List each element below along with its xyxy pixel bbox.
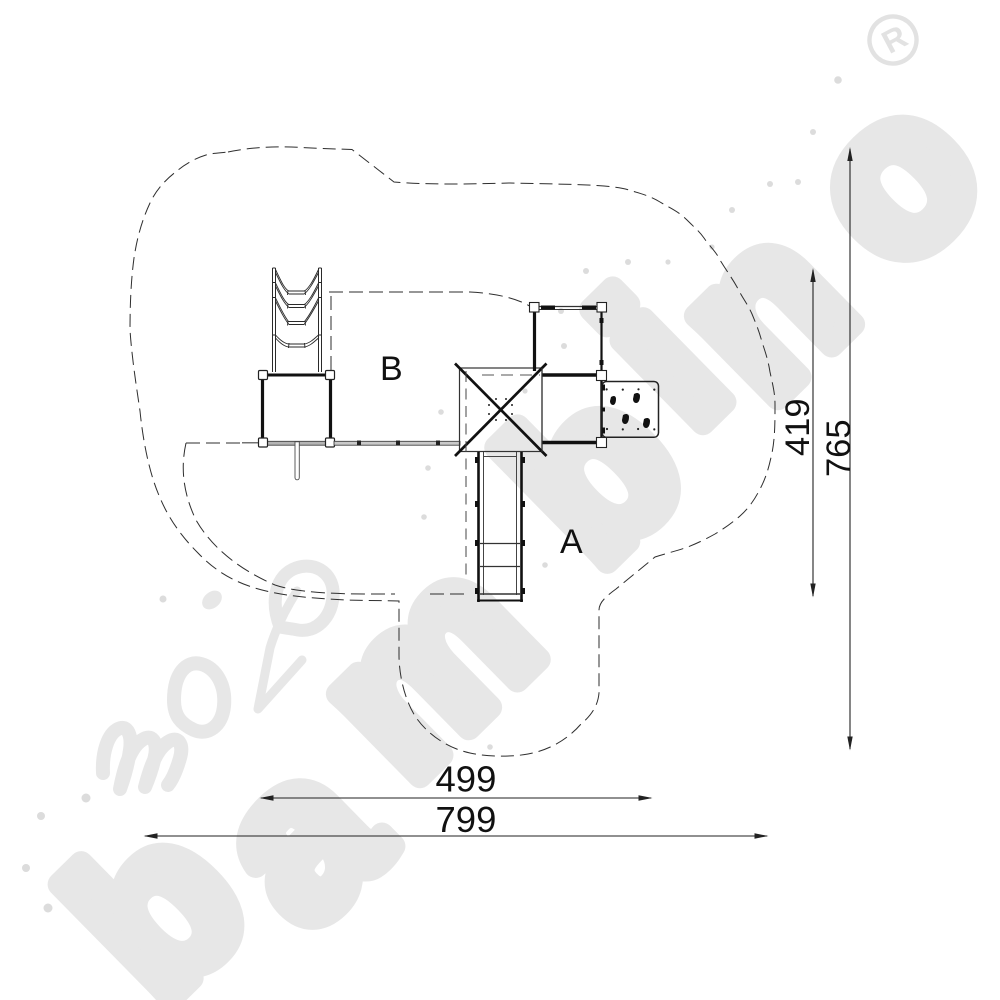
svg-text:A: A [560, 523, 583, 561]
svg-text:499: 499 [436, 759, 497, 800]
svg-text:765: 765 [820, 419, 858, 477]
svg-text:B: B [380, 350, 403, 388]
svg-text:419: 419 [779, 398, 817, 456]
svg-text:799: 799 [436, 799, 497, 840]
